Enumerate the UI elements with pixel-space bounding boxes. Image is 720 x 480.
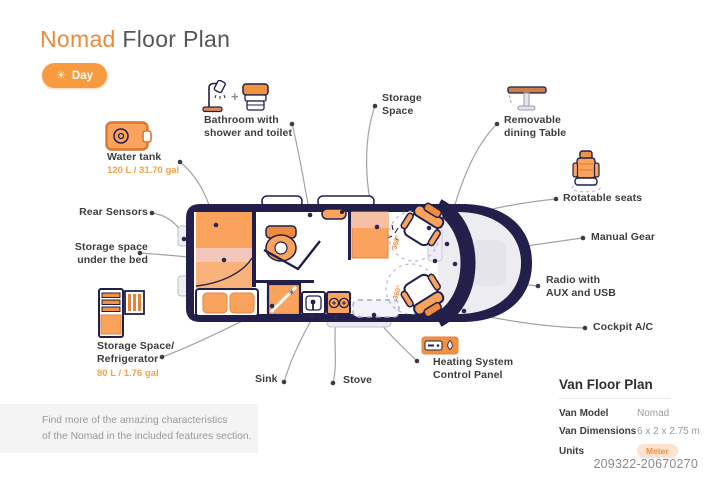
dashboard <box>472 240 506 286</box>
refrigerator-capacity: 80 L / 1.76 gal <box>97 368 174 379</box>
callout-refrigerator: Storage Space/ Refrigerator 80 L / 1.76 … <box>97 340 174 379</box>
plus-separator: + <box>231 89 239 104</box>
water-tank-capacity: 120 L / 31.70 gal <box>107 165 179 176</box>
callout-heating: Heating System Control Panel <box>433 356 513 383</box>
seat-icon <box>570 150 603 193</box>
info-row-units: Units Meter <box>559 444 715 458</box>
snowflake-icon: ✳ <box>288 288 295 297</box>
page-title: Nomad Floor Plan <box>40 26 230 53</box>
day-mode-label: Day <box>72 70 93 82</box>
callout-storage-space: Storage Space <box>382 92 422 119</box>
info-row-dimensions: Van Dimensions 6 x 2 x 2.75 m <box>559 426 715 437</box>
refrigerator-icon <box>97 284 147 340</box>
sink-unit <box>302 292 325 314</box>
info-row-model: Van Model Nomad <box>559 408 715 419</box>
info-panel-title: Van Floor Plan <box>559 377 715 392</box>
callout-sink: Sink <box>255 373 278 386</box>
units-badge[interactable]: Meter <box>637 444 678 458</box>
callout-cockpit-ac: Cockpit A/C <box>593 321 653 334</box>
callout-water-tank: Water tank 120 L / 31.70 gal <box>107 151 179 176</box>
divider <box>559 398 671 399</box>
callout-manual-gear: Manual Gear <box>591 231 655 244</box>
dining-table-icon <box>504 82 548 112</box>
bathroom-wall-bottom <box>254 280 314 283</box>
bed <box>196 212 252 288</box>
callout-bathroom: Bathroom with shower and toilet <box>204 114 292 141</box>
van-dimensions-value: 6 x 2 x 2.75 m <box>637 426 700 437</box>
van-model-value: Nomad <box>637 408 669 419</box>
under-bed-bench <box>196 289 258 316</box>
toilet-icon <box>242 83 269 112</box>
callout-dining-table: Removable dining Table <box>504 114 566 141</box>
callout-rear-sensors: Rear Sensors <box>58 206 148 219</box>
callout-radio: Radio with AUX and USB <box>546 274 616 301</box>
note-line-1: Find more of the amazing characteristics <box>42 413 258 428</box>
shower-icon <box>202 80 228 113</box>
brand-name: Nomad <box>40 26 116 52</box>
van-info-panel: Van Floor Plan Van Model Nomad Van Dimen… <box>559 377 715 465</box>
image-id: 209322-20670270 <box>594 457 699 471</box>
note-box: Find more of the amazing characteristics… <box>0 404 258 453</box>
leader-stove <box>333 318 336 383</box>
day-mode-toggle[interactable]: ☀ Day <box>42 63 107 88</box>
stove-unit <box>327 292 350 314</box>
refrigerator-unit: ✳ <box>268 284 300 315</box>
callout-stove: Stove <box>343 374 372 387</box>
toilet <box>266 226 296 261</box>
bathroom-wall-right <box>348 212 351 260</box>
leader-sink <box>284 317 313 382</box>
note-line-2: of the Nomad in the included features se… <box>42 429 258 444</box>
bathroom-wall-left <box>252 212 256 287</box>
callout-under-bed: Storage space under the bed <box>40 241 148 268</box>
sun-icon: ☀ <box>56 69 66 82</box>
wardrobe-storage <box>352 212 388 258</box>
bathroom-sink <box>322 209 346 219</box>
water-tank-icon <box>105 121 153 152</box>
heating-panel-icon <box>421 336 459 355</box>
callout-rotatable-seats: Rotatable seats <box>563 192 642 205</box>
